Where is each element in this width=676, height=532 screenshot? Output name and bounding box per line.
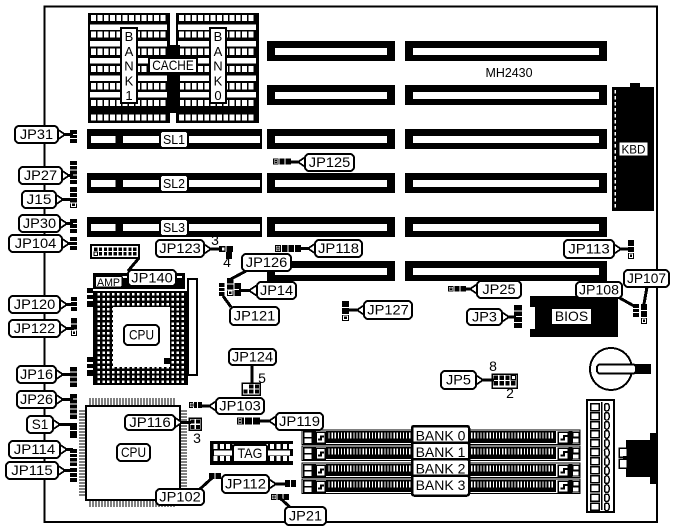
svg-text:N: N	[213, 59, 222, 74]
svg-text:SL1: SL1	[163, 132, 185, 147]
svg-text:SL3: SL3	[163, 220, 185, 235]
svg-text:KBD: KBD	[622, 143, 646, 157]
svg-text:JP102: JP102	[159, 489, 201, 505]
svg-text:8: 8	[489, 358, 497, 374]
svg-text:JP16: JP16	[20, 366, 53, 382]
svg-text:JP108: JP108	[579, 282, 619, 298]
svg-text:S1: S1	[32, 416, 49, 432]
svg-text:JP118: JP118	[318, 240, 359, 256]
svg-text:A: A	[214, 44, 223, 59]
svg-text:JP122: JP122	[14, 320, 56, 336]
svg-text:4: 4	[223, 254, 231, 270]
svg-text:1: 1	[125, 88, 132, 103]
svg-text:5: 5	[258, 370, 266, 386]
svg-text:JP3: JP3	[472, 309, 497, 325]
svg-text:JP114: JP114	[14, 441, 56, 457]
svg-text:JP107: JP107	[627, 270, 666, 286]
svg-text:JP126: JP126	[246, 254, 288, 270]
svg-text:A: A	[125, 44, 134, 59]
svg-text:JP116: JP116	[129, 414, 171, 430]
svg-text:JP27: JP27	[24, 167, 57, 183]
svg-text:CPU: CPU	[121, 444, 146, 460]
svg-text:JP127: JP127	[367, 302, 409, 318]
svg-text:N: N	[124, 59, 133, 74]
svg-text:K: K	[125, 73, 134, 88]
svg-text:3: 3	[211, 232, 219, 248]
svg-text:B: B	[125, 29, 134, 44]
svg-text:JP30: JP30	[23, 215, 56, 231]
svg-text:0: 0	[214, 88, 221, 103]
svg-text:JP113: JP113	[568, 241, 610, 257]
svg-text:JP120: JP120	[14, 296, 56, 312]
svg-text:K: K	[214, 73, 223, 88]
svg-text:JP14: JP14	[260, 282, 293, 298]
svg-text:2: 2	[506, 385, 514, 401]
svg-text:JP103: JP103	[219, 398, 261, 414]
svg-text:TAG: TAG	[238, 445, 263, 461]
svg-text:JP119: JP119	[279, 413, 320, 429]
svg-text:CACHE: CACHE	[152, 57, 194, 73]
svg-text:JP140: JP140	[131, 270, 173, 286]
svg-text:JP31: JP31	[20, 126, 53, 142]
svg-text:BIOS: BIOS	[555, 308, 588, 324]
svg-text:MH2430: MH2430	[486, 65, 533, 80]
svg-text:JP124: JP124	[232, 349, 273, 365]
svg-text:JP121: JP121	[234, 308, 276, 324]
svg-text:JP115: JP115	[11, 462, 53, 478]
svg-text:JP21: JP21	[289, 508, 322, 524]
svg-text:JP26: JP26	[20, 391, 53, 407]
svg-text:JP25: JP25	[482, 281, 515, 297]
svg-text:BANK 3: BANK 3	[416, 477, 466, 493]
svg-text:JP5: JP5	[446, 372, 471, 388]
svg-text:SL2: SL2	[163, 176, 185, 191]
svg-text:JP104: JP104	[15, 235, 57, 251]
svg-text:AMP: AMP	[97, 277, 120, 289]
svg-text:JP123: JP123	[159, 240, 201, 256]
svg-text:JP112: JP112	[225, 476, 266, 492]
svg-text:CPU: CPU	[129, 327, 154, 343]
svg-text:JP125: JP125	[309, 154, 351, 170]
svg-text:B: B	[214, 29, 223, 44]
svg-text:3: 3	[193, 430, 201, 446]
svg-text:J15: J15	[27, 191, 52, 207]
